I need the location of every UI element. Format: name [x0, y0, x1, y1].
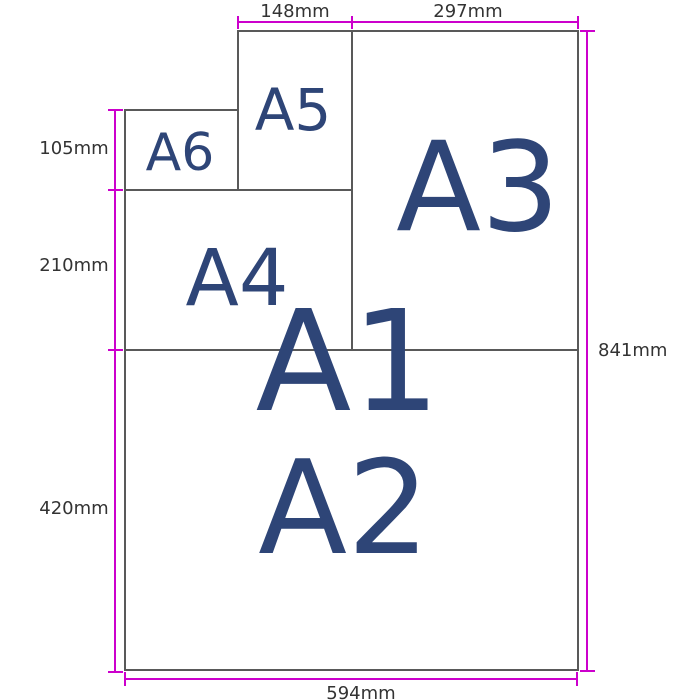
a1-label: A1 [256, 281, 441, 444]
a4-height-label: 210mm [39, 255, 108, 276]
a6-height-label: 105mm [39, 138, 108, 159]
a1-width-label: 594mm [326, 683, 395, 700]
a6-label: A6 [146, 123, 215, 183]
a1-height-label: 841mm [598, 340, 667, 361]
paper-sizes-diagram: 148mm 297mm 105mm 210mm 420mm 841mm 594m… [0, 0, 700, 700]
a3-width-label: 297mm [433, 1, 502, 22]
diagram-canvas: 148mm 297mm 105mm 210mm 420mm 841mm 594m… [0, 0, 700, 700]
a3-label: A3 [396, 116, 560, 260]
a5-label: A5 [255, 76, 332, 144]
a2-height-label: 420mm [39, 498, 108, 519]
a5-width-label: 148mm [260, 1, 329, 22]
a2-label: A2 [258, 432, 430, 584]
